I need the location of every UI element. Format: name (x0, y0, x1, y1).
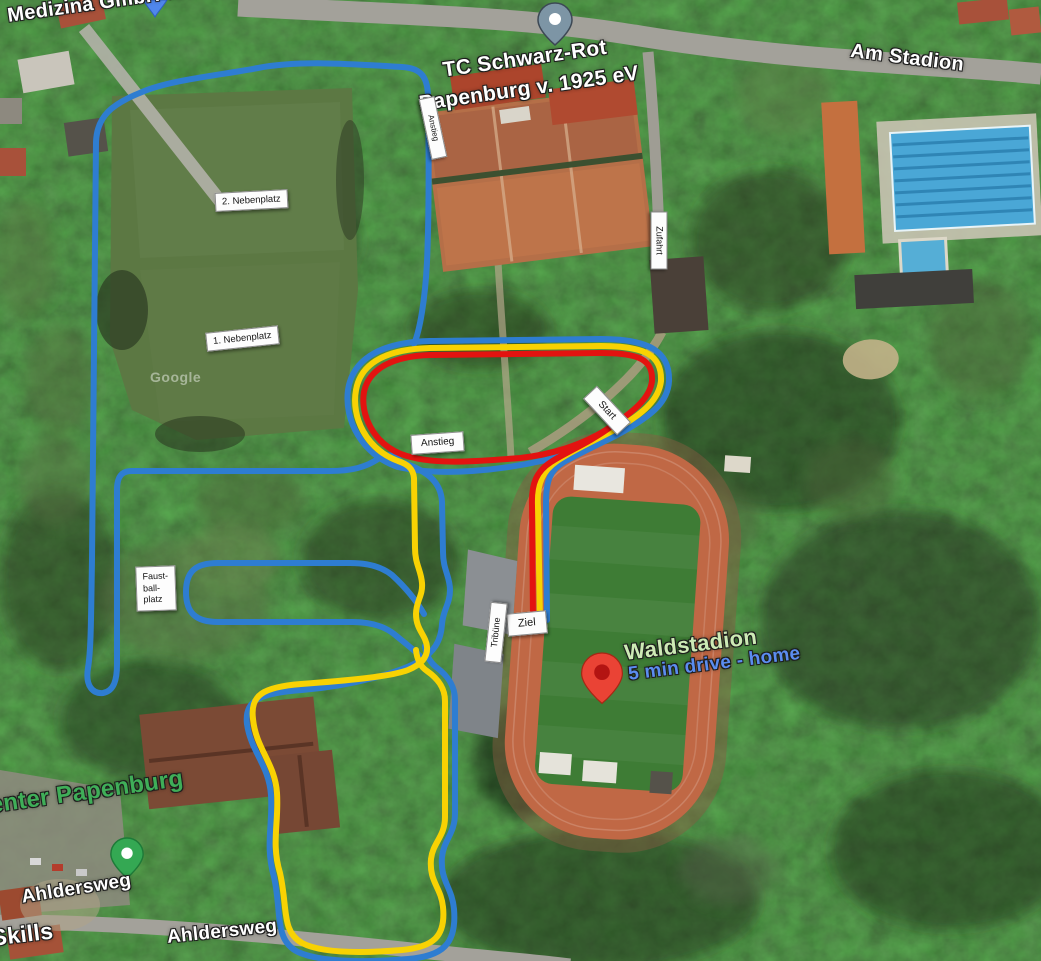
faustballplatz-line3: platz (143, 594, 162, 605)
sports-field-nebenplatz (96, 88, 364, 452)
map-canvas (0, 0, 1041, 961)
faustballplatz-line2: ball- (143, 583, 160, 594)
course-label-zufahrt: Zufahrt (651, 212, 668, 270)
satellite-map[interactable]: Medizina GmbH & Co. TC Schwarz-Rot Papen… (0, 0, 1041, 961)
course-label-nebenplatz-2: 2. Nebenplatz (215, 189, 289, 212)
course-label-ziel: Ziel (506, 610, 548, 637)
course-label-faustballplatz: Faust- ball- platz (135, 565, 176, 611)
course-label-anstieg: Anstieg (410, 431, 465, 455)
faustballplatz-line1: Faust- (142, 571, 168, 582)
google-watermark: Google (150, 369, 201, 385)
